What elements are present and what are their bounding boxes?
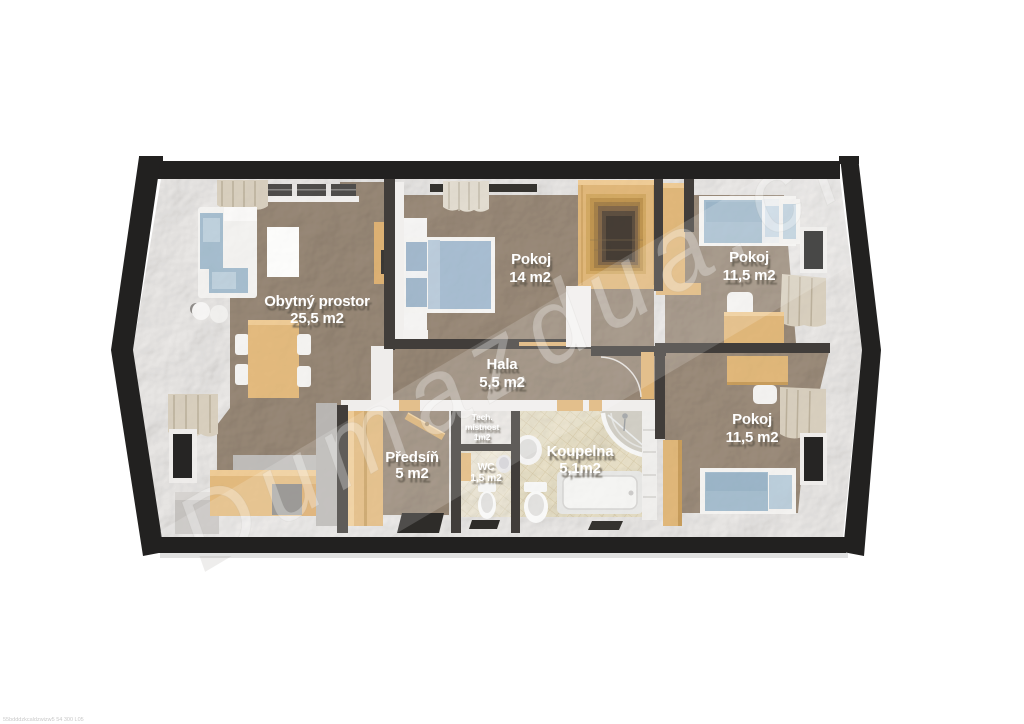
svg-text:Tech.: Tech. xyxy=(472,412,493,422)
svg-text:místnost: místnost xyxy=(465,422,500,432)
svg-text:11,5 m2: 11,5 m2 xyxy=(726,429,779,446)
svg-text:Koupelna: Koupelna xyxy=(547,443,615,460)
svg-text:Předsíň: Předsíň xyxy=(385,449,439,466)
svg-text:5,5 m2: 5,5 m2 xyxy=(479,374,525,391)
svg-text:Pokoj: Pokoj xyxy=(729,249,769,266)
svg-text:14 m2: 14 m2 xyxy=(509,269,551,286)
svg-text:Pokoj: Pokoj xyxy=(732,411,772,428)
svg-text:1,5 m2: 1,5 m2 xyxy=(470,472,502,484)
svg-text:1m2: 1m2 xyxy=(474,432,491,442)
svg-text:Obytný prostor: Obytný prostor xyxy=(264,293,370,310)
svg-text:11,5 m2: 11,5 m2 xyxy=(723,267,776,284)
svg-text:Pokoj: Pokoj xyxy=(511,251,551,268)
svg-text:55bdddzkcaldzwizw5 54 300 L05: 55bdddzkcaldzwizw5 54 300 L05 xyxy=(3,717,84,723)
svg-text:5,1m2: 5,1m2 xyxy=(559,460,601,477)
svg-text:Hala: Hala xyxy=(487,356,519,373)
svg-text:5 m2: 5 m2 xyxy=(395,465,428,482)
svg-text:25,5 m2: 25,5 m2 xyxy=(290,310,344,327)
